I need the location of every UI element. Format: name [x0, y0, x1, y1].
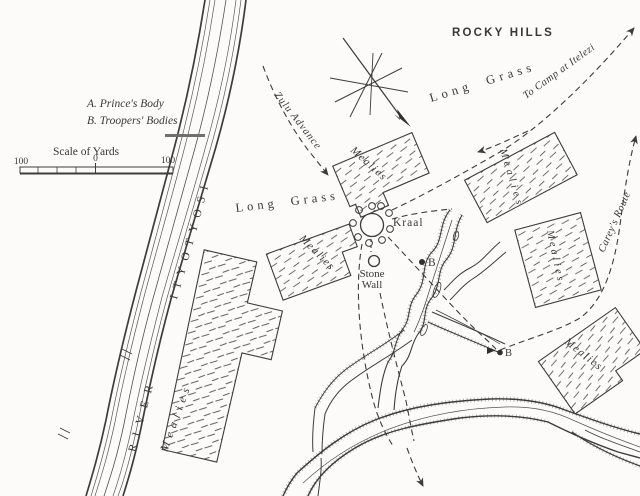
map-canvas: RIVER ITYOTYOSI Mealies Mealies Mealies …: [0, 0, 640, 496]
rocky-hills-label: ROCKY HILLS: [452, 27, 554, 39]
troopers-body-letter: B: [428, 257, 436, 269]
kraal-label: Kraal: [393, 217, 424, 229]
donga-edge: [313, 330, 404, 452]
legend: A. Prince's Body B. Troopers' Bodies Sca…: [14, 98, 205, 174]
long-grass-label-ne: Long Grass: [428, 59, 537, 105]
battle-map: RIVER ITYOTYOSI Mealies Mealies Mealies …: [0, 0, 640, 496]
stream-texture: [283, 399, 640, 496]
scale-left-label: 100: [14, 157, 29, 167]
kraal-hut: [355, 234, 362, 241]
scale-zero-label: 0: [93, 154, 98, 164]
kraal-hut: [366, 240, 373, 247]
donga-texture: [315, 330, 404, 408]
scale-bar: [20, 163, 173, 174]
careys-route-label: Carey's Route: [597, 190, 634, 254]
stream: [283, 399, 640, 496]
legend-divider: [165, 134, 205, 137]
donga-edge: [378, 210, 450, 408]
stone-wall-circle: [369, 256, 380, 267]
zulu-advance-label: Zulu Advance: [272, 90, 324, 152]
body-dot: [497, 350, 503, 356]
route-south-arrow: [407, 448, 423, 486]
legend-item-a: A. Prince's Body: [86, 98, 165, 110]
scale-right-label: 100: [161, 156, 176, 166]
kraal-circle: [361, 214, 384, 237]
mealies-field-center: [266, 224, 365, 300]
kraal-hut: [379, 237, 386, 244]
stone-wall-label: Wall: [362, 279, 383, 291]
stream-texture: [308, 416, 548, 496]
body-letter: B: [505, 348, 512, 359]
legend-item-b: B. Troopers' Bodies: [87, 115, 178, 127]
donga-edge: [322, 340, 412, 454]
stream-bank: [283, 399, 640, 496]
mealies-field-east-upper: [465, 132, 578, 222]
river-flow-arrow: [58, 428, 70, 439]
body-pointer-dart: [487, 347, 495, 354]
long-grass-label-west: Long Grass: [235, 188, 340, 215]
compass-ray: [343, 38, 403, 120]
kraal-hut: [386, 210, 393, 217]
donga-edge: [394, 215, 462, 410]
stream-inner: [585, 430, 640, 452]
scale-title: Scale of Yards: [53, 146, 120, 158]
compass-star: [330, 38, 411, 127]
troopers-body-dot: [419, 259, 425, 265]
stream-texture: [572, 432, 640, 466]
kraal-hut: [350, 220, 357, 227]
